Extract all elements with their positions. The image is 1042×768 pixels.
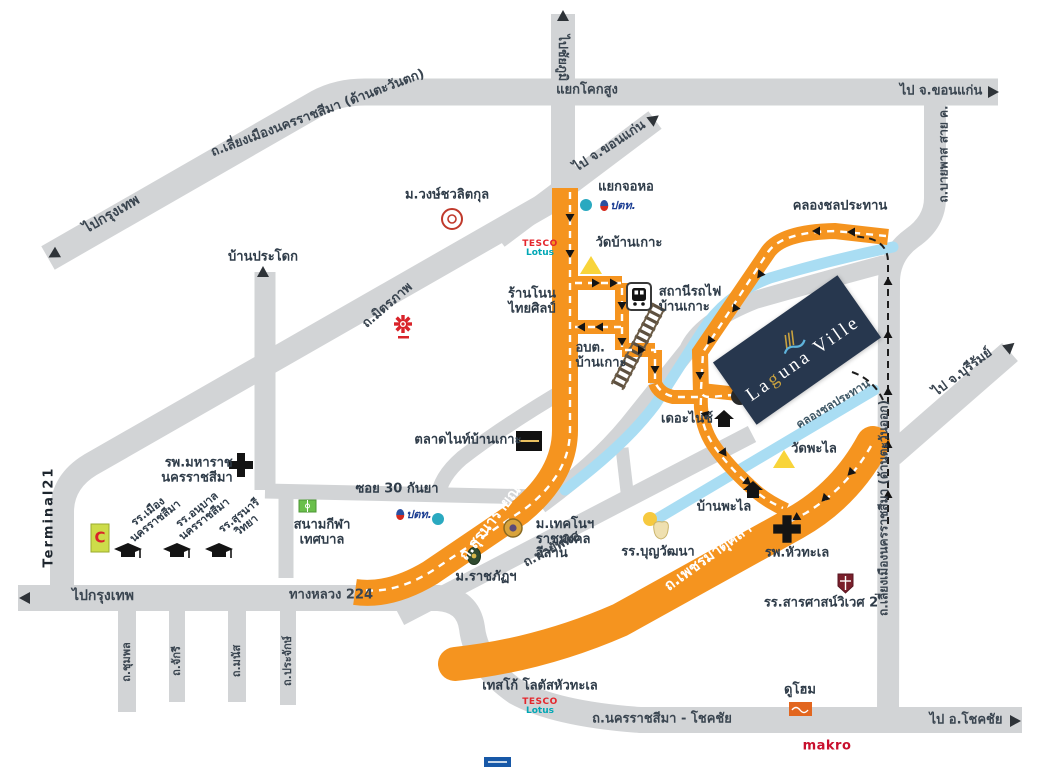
wongchavalitkul-emblem-icon xyxy=(442,209,462,229)
ptt-flame-icon xyxy=(600,200,608,211)
homepro-logo xyxy=(484,757,511,767)
school-cap-icon-anuban xyxy=(163,543,191,558)
arrow-ban-pradok xyxy=(257,266,269,277)
location-map: ไปกรุงเทพ ถ.เลี่ยงเมืองนครราชสีมา (ด้านต… xyxy=(0,0,1042,768)
ptt-label: ปตท. xyxy=(610,196,636,214)
house-icon-the-nice xyxy=(714,410,734,427)
gray-roads xyxy=(18,14,1022,720)
ptt-station-soi30: ปตท. xyxy=(396,505,432,523)
map-graphics xyxy=(0,0,1042,768)
duhome-logo xyxy=(789,702,812,716)
tesco-lotus-logo-ban-ko: TESCO Lotus xyxy=(522,240,558,258)
school-cap-icon-muang xyxy=(114,543,142,558)
gas-dot-icon-joho xyxy=(580,199,592,211)
temple-icon-wat-ban-ko xyxy=(580,256,602,274)
ptt-flame-icon xyxy=(396,509,404,520)
the-mall-star-icon xyxy=(394,315,412,333)
road-soi30-path xyxy=(265,491,540,497)
ptt-station-joho: ปตท. xyxy=(600,196,636,214)
train-station-icon xyxy=(627,283,651,310)
stadium-field-icon xyxy=(299,500,316,512)
night-market-logo xyxy=(516,431,542,451)
the-mall-caption-mark xyxy=(398,336,409,339)
klang-plaza-logo xyxy=(91,524,109,552)
gas-dot-icon-soi30 xyxy=(432,513,444,525)
tesco-lotus-logo-huathale: TESCO Lotus xyxy=(522,698,558,716)
boonwattana-emblem-icon xyxy=(654,522,669,539)
road-buriram-path xyxy=(892,352,1010,455)
school-cap-icon-suranari xyxy=(205,543,233,558)
hospital-cross-icon-maharat xyxy=(229,453,253,477)
ptt-label: ปตท. xyxy=(406,505,432,523)
road-east-bypass-path xyxy=(888,92,935,718)
